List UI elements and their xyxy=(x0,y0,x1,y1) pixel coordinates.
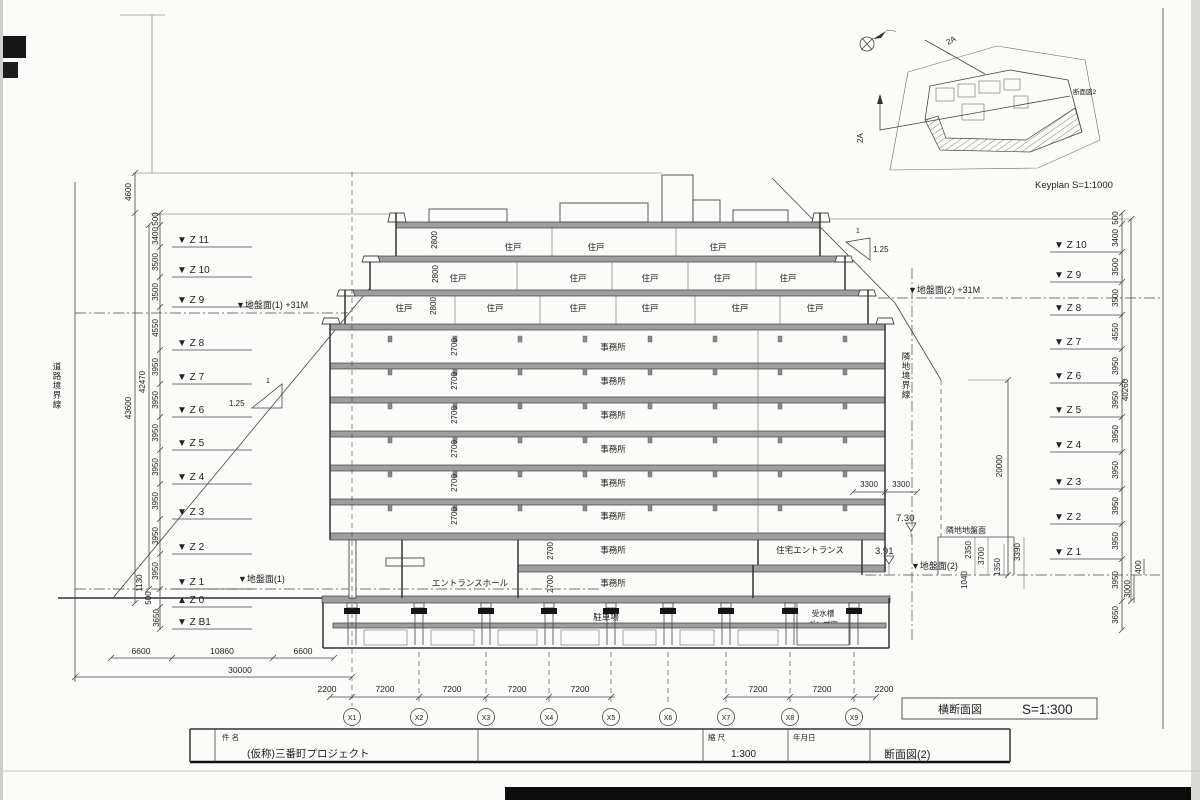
dim-right: 400 xyxy=(1134,560,1143,574)
dim-grid: 2200 xyxy=(875,684,894,694)
residential-unit-label: 住戸 xyxy=(486,303,503,313)
dim-road: 6600 xyxy=(132,646,151,656)
level-label-left: ▼ Z 5 xyxy=(177,438,205,449)
dim-right: 3500 xyxy=(1111,289,1120,307)
keyplan-cut-label-top: 2A xyxy=(945,34,958,47)
dim-right-cluster: 1350 xyxy=(993,558,1002,576)
level-label-right: ▼ Z 7 xyxy=(1054,337,1082,348)
level-label-right: ▼ Z 6 xyxy=(1054,371,1082,382)
office-label: 事務所 xyxy=(600,545,626,555)
slope-ratio-left-value: 1.25 xyxy=(229,399,245,408)
level-label-right: ▼ Z 5 xyxy=(1054,405,1082,416)
keyplan: 2A 2A 断面図2 Keyplan S=1:1000 xyxy=(856,30,1113,191)
grid-bubble-label: X4 xyxy=(545,715,554,722)
dim-right: 4550 xyxy=(1111,323,1120,341)
level-label-right: ▼ Z 3 xyxy=(1054,477,1082,488)
dim-left: 3950 xyxy=(151,391,160,409)
dim-left: 3400 xyxy=(151,227,160,245)
dim-right-cluster: 2350 xyxy=(964,541,973,559)
ground2-label: ▼地盤面(2) xyxy=(911,560,958,571)
dim-floor-height: 2700 xyxy=(450,474,459,492)
dim-right: 3950 xyxy=(1111,391,1120,409)
dim-right: 3950 xyxy=(1111,532,1120,550)
north-arrow-icon xyxy=(860,30,896,51)
dim-floor-height: 2800 xyxy=(431,265,440,283)
dim-floor-height: 2700 xyxy=(450,406,459,424)
building-section: 住戸住戸住戸住戸住戸住戸住戸住戸住戸住戸住戸住戸住戸住戸事務所事務所事務所事務所… xyxy=(322,175,894,648)
dim-left: 43600 xyxy=(124,396,133,419)
dim-floor-height: 2800 xyxy=(430,231,439,249)
level-label-right: ▼ Z 9 xyxy=(1054,270,1082,281)
level-7-30-marker: 7.30 xyxy=(896,513,916,537)
dim-road: 6600 xyxy=(294,646,313,656)
dim-right-cluster: 3300 xyxy=(892,480,910,489)
dim-left: 1130 xyxy=(135,574,144,592)
dim-left: 42470 xyxy=(138,370,147,393)
dim-right: 3950 xyxy=(1111,497,1120,515)
keyplan-caption: Keyplan S=1:1000 xyxy=(1035,180,1113,191)
level-label-left: ▼ Z 3 xyxy=(177,507,205,518)
dim-left: 3950 xyxy=(151,424,160,442)
dim-right: 3950 xyxy=(1111,357,1120,375)
dim-grid: 7200 xyxy=(508,684,527,694)
dim-left: 3950 xyxy=(151,458,160,476)
office-label: 事務所 xyxy=(600,578,626,588)
residential-unit-label: 住戸 xyxy=(713,273,730,283)
dim-floor-height: 2800 xyxy=(429,297,438,315)
residential-unit-label: 住戸 xyxy=(709,242,726,252)
dim-left: 500 xyxy=(151,212,160,226)
left-level-markers: ▼ Z 11▼ Z 10▼ Z 9▼ Z 8▼ Z 7▼ Z 6▼ Z 5▼ Z… xyxy=(172,235,252,629)
slope-ratio-right-rise: 1 xyxy=(856,228,860,235)
scanned-drawing-sheet: 件 名 (仮称)三番町プロジェクト 縮 尺 1:300 年月日 断面図(2) 横… xyxy=(0,0,1200,800)
level-label-right: ▼ Z 10 xyxy=(1054,240,1087,251)
dim-floor-height: 2700 xyxy=(450,372,459,390)
dim-right: 3950 xyxy=(1111,425,1120,443)
grid-bubble-label: X3 xyxy=(482,715,491,722)
dim-right: 3400 xyxy=(1111,229,1120,247)
keyplan-section-ref: 断面図2 xyxy=(1073,87,1097,96)
dim-grid: 7200 xyxy=(749,684,768,694)
dim-right-cluster: 1040 xyxy=(960,571,969,589)
sheet-label: 横断面図 S=1:300 xyxy=(902,698,1097,719)
level-label-left: ▼ Z 1 xyxy=(177,577,205,588)
dim-right: 3000 xyxy=(1123,580,1132,598)
neighbor-ground-label: 隣地地盤面 xyxy=(946,525,986,535)
residential-unit-label: 住戸 xyxy=(395,303,412,313)
residential-unit-label: 住戸 xyxy=(569,273,586,283)
dim-right-cluster: 20000 xyxy=(995,454,1004,477)
ground1-label: ▼地盤面(1) xyxy=(238,573,285,584)
dim-floor-height: 2700 xyxy=(546,542,555,560)
dim-right-cluster: 3300 xyxy=(860,480,878,489)
residential-entrance-label: 住宅エントランス xyxy=(776,545,844,555)
dim-right-cluster: 3390 xyxy=(1013,543,1022,561)
level-label-left: ▼ Z 6 xyxy=(177,405,205,416)
dim-grid: 7200 xyxy=(571,684,590,694)
residential-unit-label: 住戸 xyxy=(504,242,521,252)
level-label-left: ▼ Z 11 xyxy=(177,235,209,246)
title-block: 件 名 (仮称)三番町プロジェクト 縮 尺 1:300 年月日 断面図(2) xyxy=(190,8,1163,762)
titleblock-field-name: 件 名 xyxy=(222,732,239,742)
dim-road: 30000 xyxy=(228,665,252,675)
level-label-right: ▼ Z 1 xyxy=(1054,547,1082,558)
dim-grid: 7200 xyxy=(376,684,395,694)
dim-right: 3650 xyxy=(1111,606,1120,624)
dim-left: 3500 xyxy=(151,283,160,301)
office-label: 事務所 xyxy=(600,410,626,420)
dim-floor-height: 2700 xyxy=(450,338,459,356)
dim-left: 3950 xyxy=(151,358,160,376)
residential-unit-label: 住戸 xyxy=(641,273,658,283)
dim-right: 3950 xyxy=(1111,571,1120,589)
office-label: 事務所 xyxy=(600,376,626,386)
dim-left: 4600 xyxy=(124,183,133,201)
residential-unit-label: 住戸 xyxy=(779,273,796,283)
residential-unit-label: 住戸 xyxy=(569,303,586,313)
office-label: 事務所 xyxy=(600,444,626,454)
dim-left: 3950 xyxy=(151,492,160,510)
residential-unit-label: 住戸 xyxy=(587,242,604,252)
dim-left: 500 xyxy=(144,591,153,605)
residential-unit-label: 住戸 xyxy=(641,303,658,313)
dim-left: 3950 xyxy=(151,527,160,545)
level-label-left: ▲ Z 0 xyxy=(177,595,205,606)
level-label-left: ▼ Z 2 xyxy=(177,542,205,553)
dim-right: 40260 xyxy=(1121,378,1130,401)
dim-floor-height: 2700 xyxy=(450,507,459,525)
dim-left: 4550 xyxy=(151,319,160,337)
office-label: 事務所 xyxy=(600,478,626,488)
dim-left: 3950 xyxy=(151,562,160,580)
slope-ratio-right-value: 1.25 xyxy=(873,245,889,254)
titleblock-project-name: (仮称)三番町プロジェクト xyxy=(247,747,370,760)
grid-bubble-label: X1 xyxy=(348,715,357,722)
level-label-left: ▼ Z B1 xyxy=(177,617,211,628)
level-label-left: ▼ Z 4 xyxy=(177,472,205,483)
titleblock-scale-value: 1:300 xyxy=(731,749,756,760)
dim-grid: 7200 xyxy=(443,684,462,694)
level-label-right: ▼ Z 4 xyxy=(1054,440,1082,451)
entrance-hall-label: エントランスホール xyxy=(432,578,509,588)
dim-grid: 7200 xyxy=(813,684,832,694)
dim-road: 10860 xyxy=(210,646,234,656)
office-label: 事務所 xyxy=(600,511,626,521)
level-label-left: ▼ Z 10 xyxy=(177,265,210,276)
level-label-left: ▼ Z 7 xyxy=(177,372,205,383)
road-boundary-label: 道路境界線 xyxy=(52,361,62,409)
office-label: 事務所 xyxy=(600,342,626,352)
dim-left: 3650 xyxy=(152,609,161,627)
dim-right-cluster: 3700 xyxy=(977,547,986,565)
svg-text:7.30: 7.30 xyxy=(896,513,915,524)
ground1-plus31-label: ▼地盤面(1) +31M xyxy=(236,299,308,310)
sheet-drawing-scale: S=1:300 xyxy=(1022,702,1073,717)
dim-right: 500 xyxy=(1111,211,1120,225)
dim-right: 3950 xyxy=(1111,461,1120,479)
grid-bubble-label: X7 xyxy=(722,715,731,722)
grid-bubble-label: X6 xyxy=(664,715,673,722)
neighbor-boundary-label: 隣地境界線 xyxy=(901,351,911,399)
level-label-left: ▼ Z 8 xyxy=(177,338,205,349)
pump-room-label-line1: 受水槽 xyxy=(812,608,835,618)
grid-bubble-label: X5 xyxy=(607,715,616,722)
dim-grid: 2200 xyxy=(318,684,337,694)
dim-floor-height: 2700 xyxy=(546,575,555,593)
dim-left: 3500 xyxy=(151,253,160,271)
keyplan-cut-label-left: 2A xyxy=(856,133,865,143)
section-drawing: 件 名 (仮称)三番町プロジェクト 縮 尺 1:300 年月日 断面図(2) 横… xyxy=(0,0,1200,800)
sheet-drawing-type: 横断面図 xyxy=(938,702,982,716)
ground2-plus31-label: ▼地盤面(2) +31M xyxy=(908,284,980,295)
grid-bubble-label: X2 xyxy=(415,715,424,722)
titleblock-field-date: 年月日 xyxy=(793,732,816,742)
level-label-left: ▼ Z 9 xyxy=(177,295,205,306)
titleblock-drawing-number: 断面図(2) xyxy=(884,747,930,761)
residential-unit-label: 住戸 xyxy=(731,303,748,313)
grid-bubble-label: X8 xyxy=(786,715,795,722)
grid-bubble-label: X9 xyxy=(850,715,859,722)
dim-right: 3500 xyxy=(1111,258,1120,276)
level-label-right: ▼ Z 8 xyxy=(1054,303,1082,314)
level-label-right: ▼ Z 2 xyxy=(1054,512,1082,523)
residential-unit-label: 住戸 xyxy=(806,303,823,313)
dimension-labels: 4600500340035003500455039503950395039503… xyxy=(72,170,1144,680)
titleblock-field-scale: 縮 尺 xyxy=(708,732,726,742)
slope-ratio-left-rise: 1 xyxy=(266,378,270,385)
dim-floor-height: 2700 xyxy=(450,440,459,458)
residential-unit-label: 住戸 xyxy=(449,273,466,283)
